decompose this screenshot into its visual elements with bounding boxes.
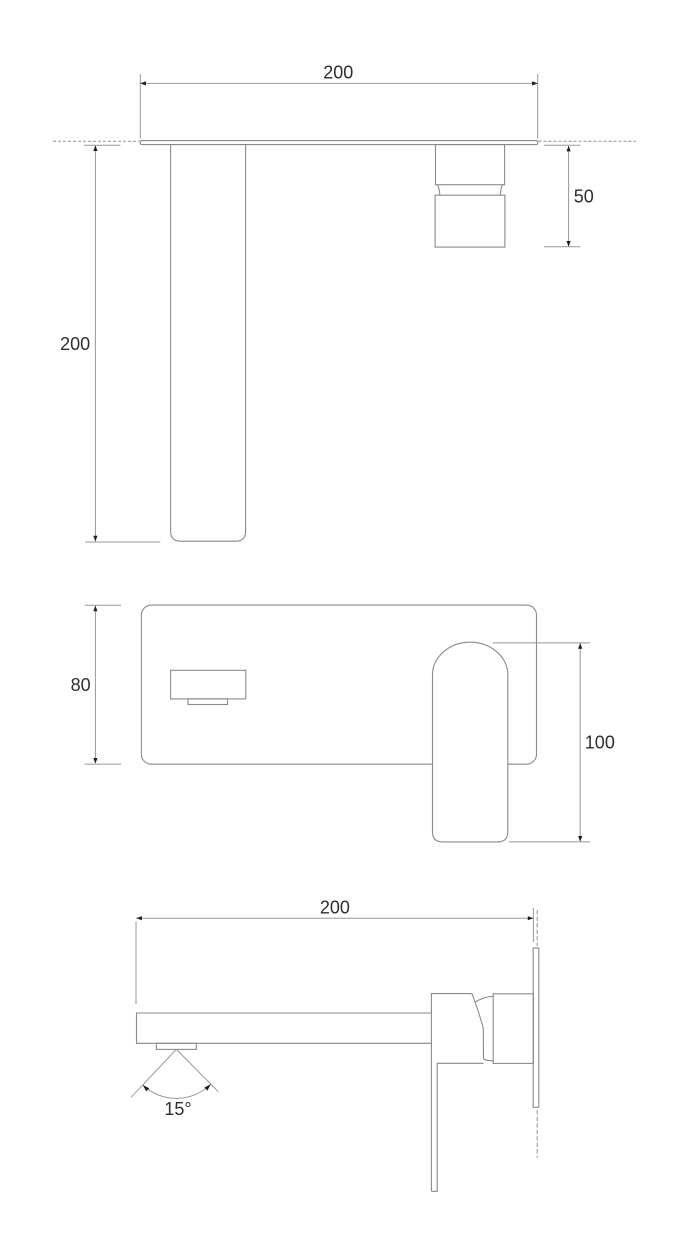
- svg-text:15°: 15°: [164, 1099, 191, 1119]
- svg-text:80: 80: [71, 675, 91, 695]
- svg-text:50: 50: [574, 187, 594, 207]
- svg-text:200: 200: [323, 63, 353, 83]
- svg-text:200: 200: [60, 334, 90, 354]
- svg-text:100: 100: [585, 733, 615, 753]
- svg-text:200: 200: [320, 897, 350, 917]
